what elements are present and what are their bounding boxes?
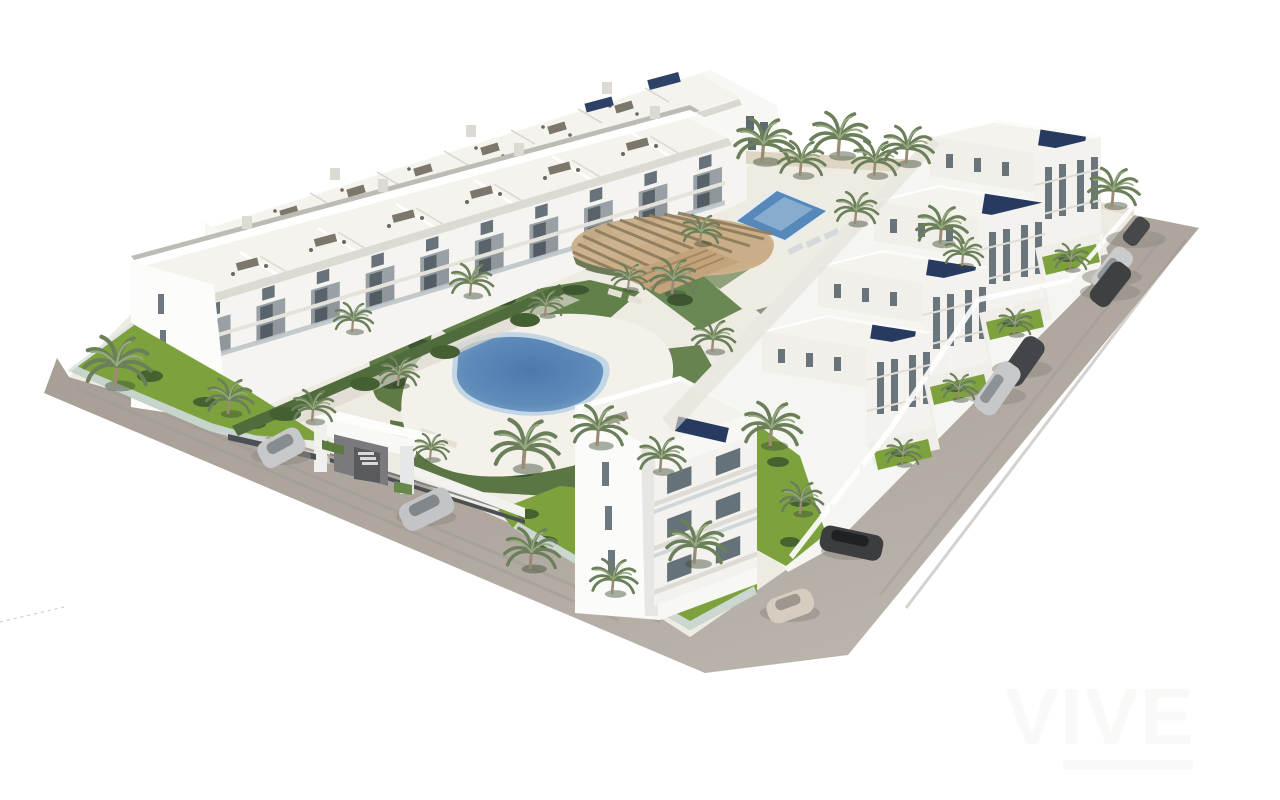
svg-text:VIVE: VIVE [1005, 672, 1195, 761]
